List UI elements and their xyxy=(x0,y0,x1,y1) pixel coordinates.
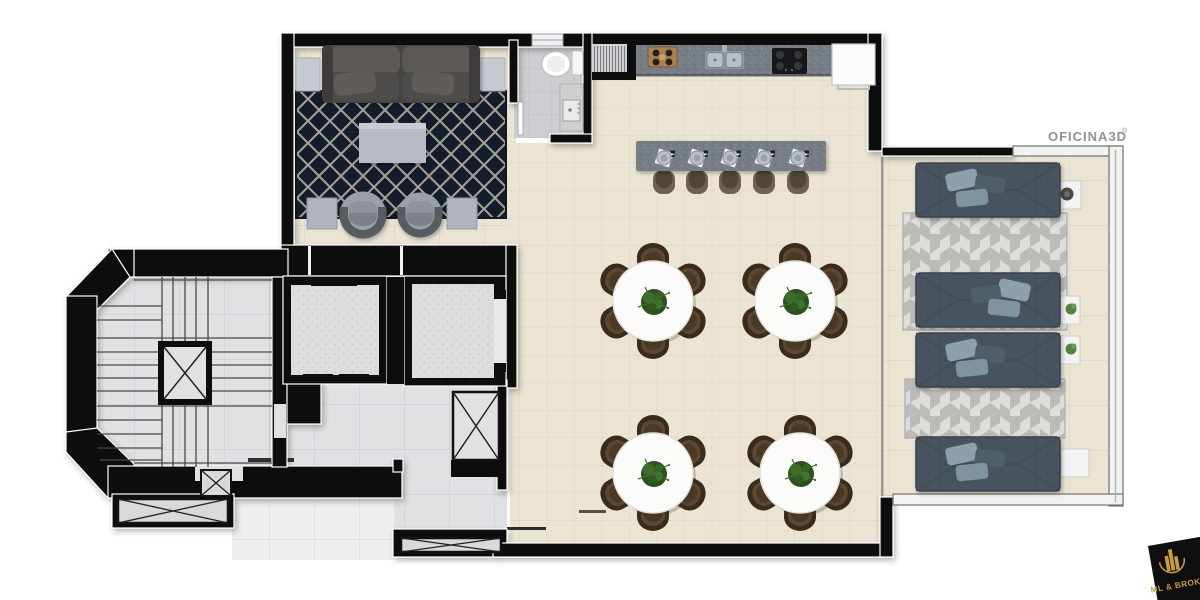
svg-text:®: ® xyxy=(1122,127,1128,135)
svg-text:OFICINA3D: OFICINA3D xyxy=(1048,129,1127,144)
